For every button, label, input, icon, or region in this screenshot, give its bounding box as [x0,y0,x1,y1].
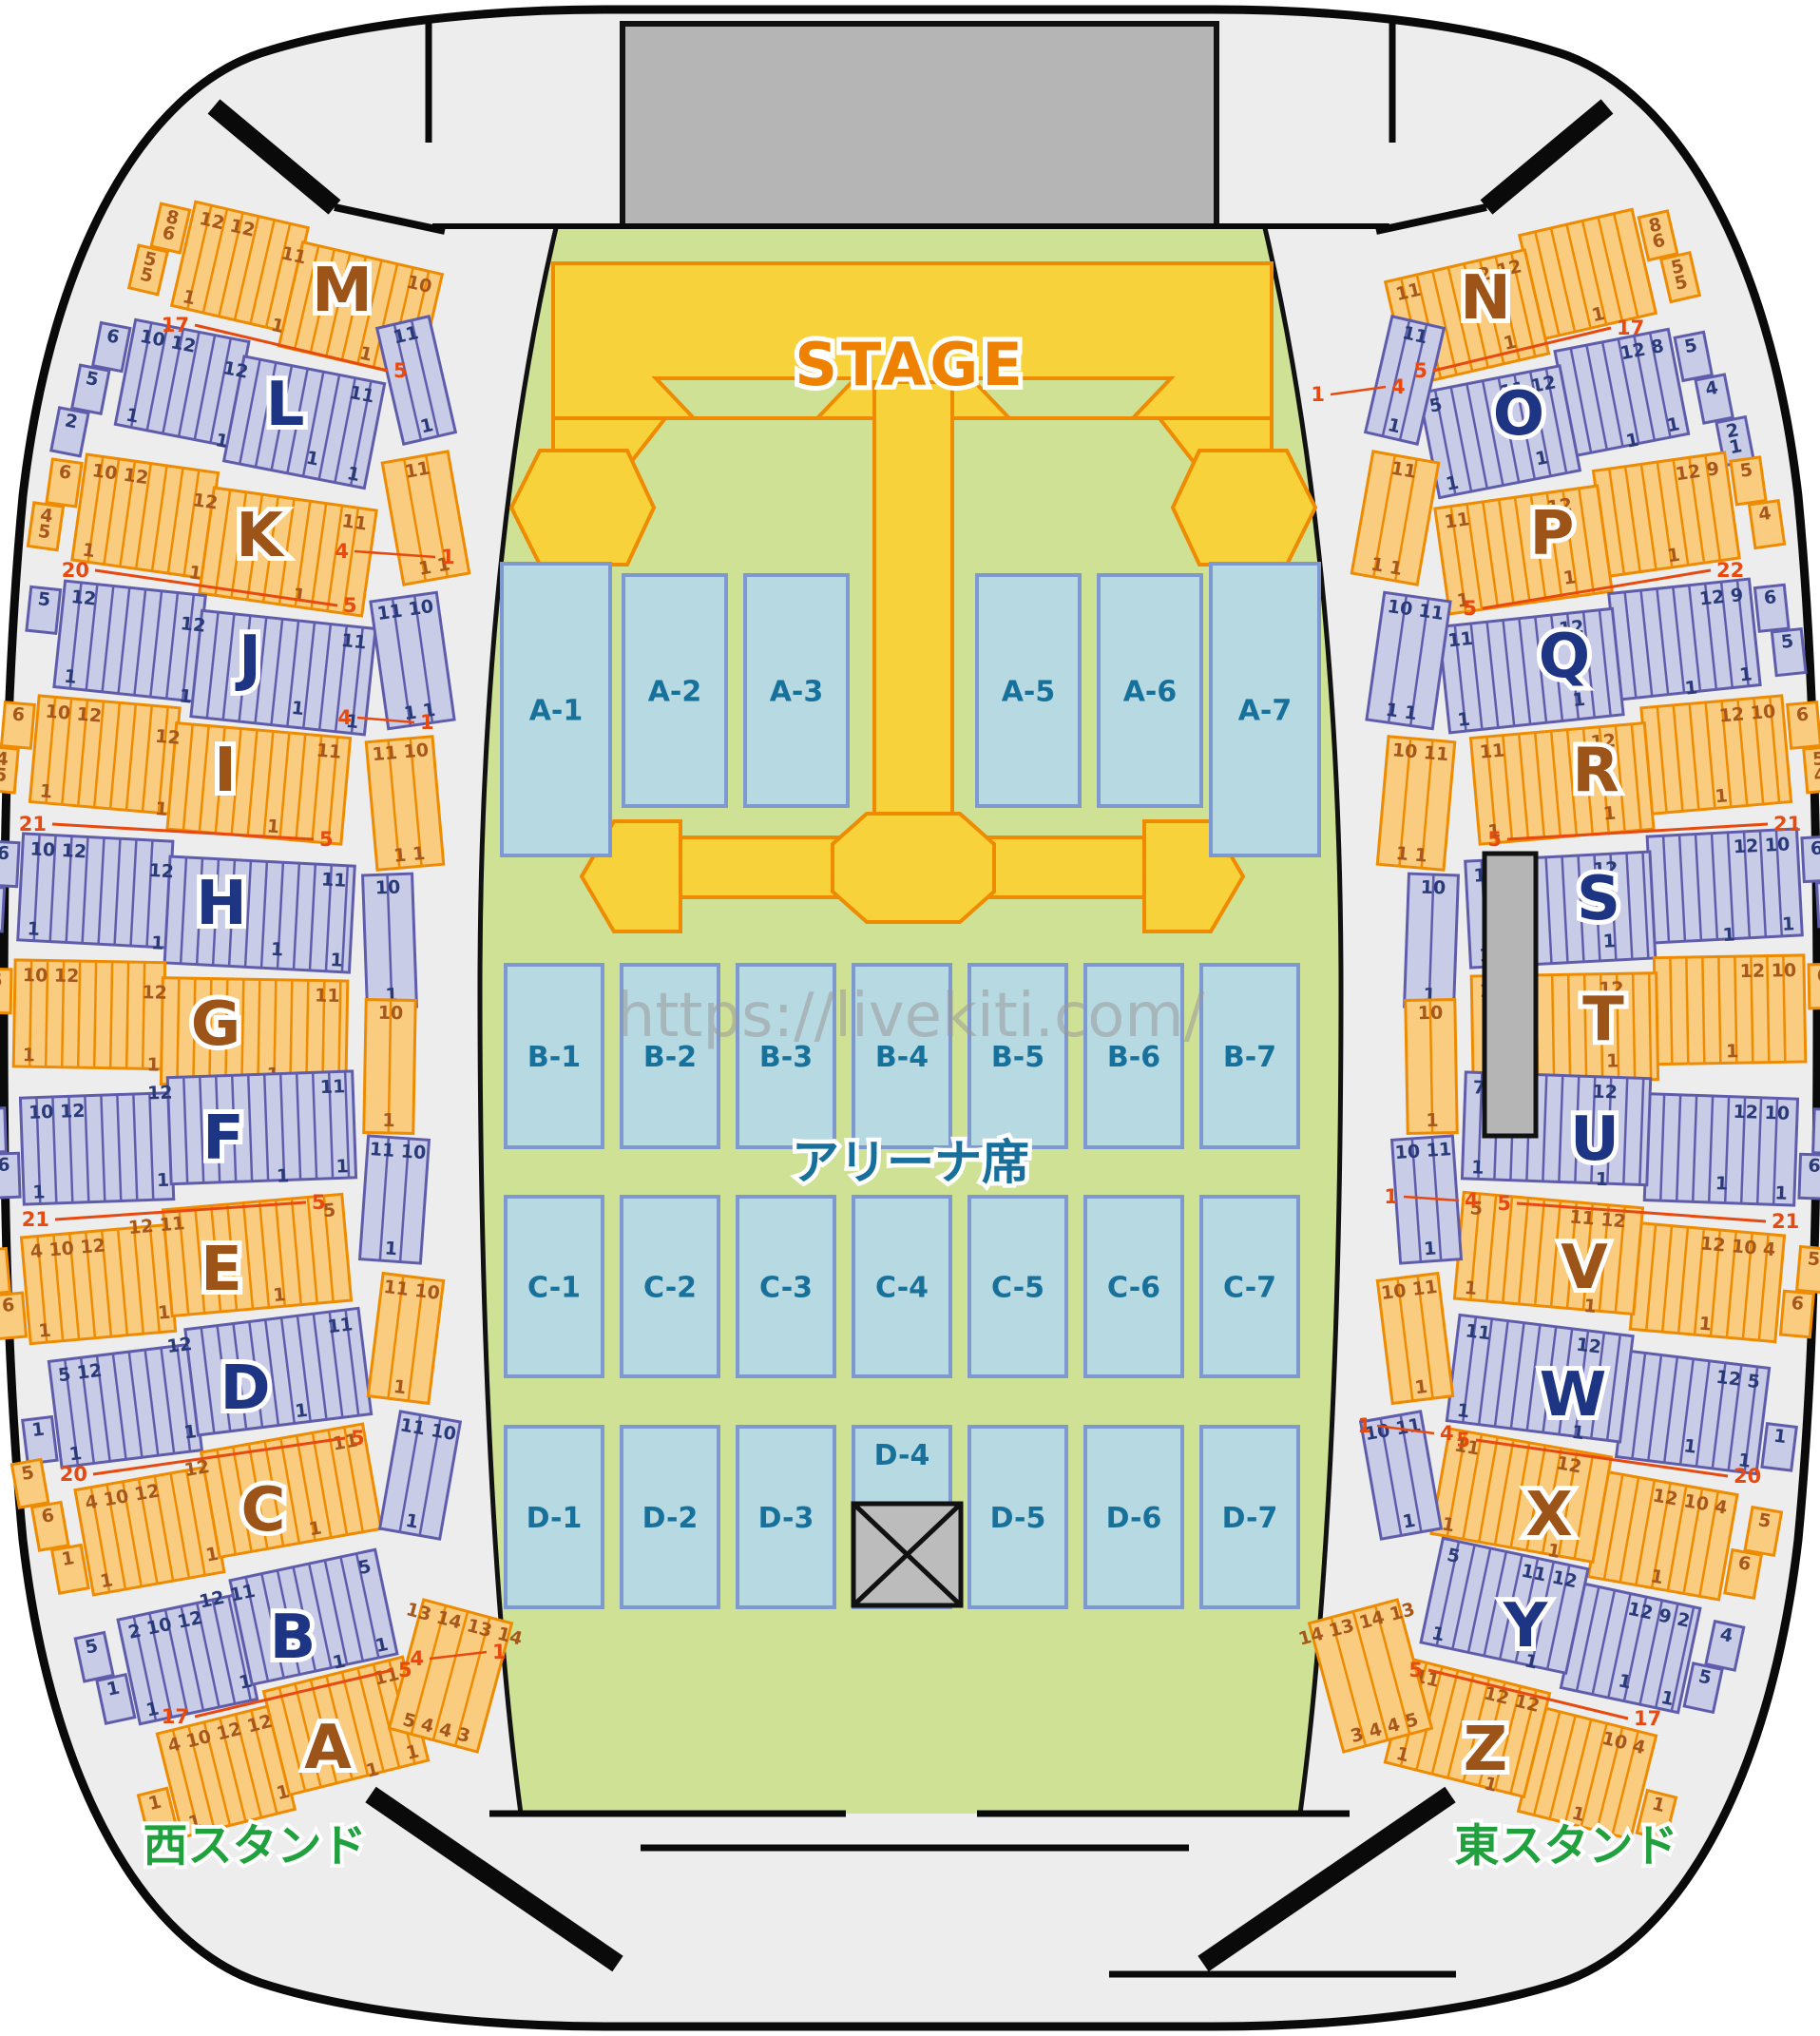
svg-text:6: 6 [0,1155,10,1176]
arena-block-label: D-3 [758,1502,814,1535]
svg-text:10: 10 [374,877,400,899]
svg-text:4: 4 [337,706,352,729]
svg-text:12 10: 12 10 [1739,960,1796,982]
east-gray-structure [1485,854,1536,1136]
arena-block-label: D-1 [527,1502,583,1535]
svg-text:1: 1 [1715,1173,1728,1194]
svg-text:6: 6 [1791,1293,1805,1315]
inner-block: 101 [363,874,417,1008]
inner-block: 11 101 [368,1274,443,1404]
inner-block: 11 101 1 [366,737,443,871]
svg-text:5: 5 [1413,359,1427,382]
svg-text:1: 1 [393,1376,408,1398]
svg-text:1: 1 [146,1054,160,1075]
svg-text:5: 5 [393,359,408,382]
svg-text:11: 11 [320,869,347,891]
svg-text:5: 5 [351,1427,365,1450]
svg-text:10 12: 10 12 [29,1101,86,1124]
section-letter-N: N [1460,263,1511,334]
section-letter-Z: Z [1464,1715,1507,1785]
east-stand-label: 東スタンド [1455,1820,1678,1873]
arena-block-C-1: C-1 [506,1197,603,1376]
arena-block-label: D-7 [1222,1502,1278,1535]
section-letter-H: H [196,869,247,939]
arena-block-label: C-4 [875,1272,929,1305]
svg-text:1: 1 [178,685,192,707]
svg-text:1: 1 [1426,1110,1439,1131]
seating-chart: STAGE A-1A-2A-3A-5A-6A-7B-1B-2B-3B-4B-5B… [0,0,1820,2036]
inner-block: 10 111 1 [1377,737,1454,871]
arena-block-label: C-3 [759,1272,813,1305]
svg-text:5: 5 [1807,1248,1820,1270]
arena-block-C-5: C-5 [969,1197,1066,1376]
svg-text:1: 1 [276,1165,289,1186]
svg-text:1: 1 [492,1641,507,1663]
svg-text:1: 1 [1781,913,1794,935]
svg-text:6: 6 [1763,586,1777,608]
arena-block-label: A-1 [529,695,584,728]
stage-label: STAGE [795,330,1025,399]
inner-block: 101 [1405,874,1459,1008]
svg-text:21: 21 [19,813,47,836]
svg-text:1: 1 [1384,1185,1398,1208]
section-letter-E: E [201,1235,242,1305]
svg-text:21: 21 [1772,1210,1799,1233]
svg-text:12: 12 [1592,1082,1618,1104]
svg-text:12: 12 [70,586,98,610]
svg-text:1: 1 [68,1443,84,1465]
svg-text:1: 1 [1464,1277,1478,1299]
section-letter-L: L [266,370,305,440]
svg-text:4: 4 [1391,375,1406,398]
svg-text:17: 17 [1617,317,1644,339]
arena-block-label: D-4 [874,1439,930,1472]
arena-block-A-5: A-5 [977,575,1080,806]
svg-text:1: 1 [1471,1157,1485,1178]
inner-block: 10 111 [1377,1274,1452,1404]
arena-block-D-7: D-7 [1201,1427,1298,1607]
svg-text:1: 1 [270,939,283,961]
svg-text:1: 1 [154,798,168,820]
svg-text:12: 12 [180,613,207,637]
svg-text:4: 4 [335,540,349,563]
svg-text:21: 21 [22,1208,49,1231]
svg-text:10 12: 10 12 [29,838,87,862]
svg-text:1: 1 [1726,1041,1739,1062]
svg-text:12: 12 [1575,1335,1602,1358]
svg-text:12: 12 [165,1334,193,1357]
arena-block-label: D-2 [642,1502,699,1535]
section-letter-P: P [1530,499,1575,569]
arena-floor-label: アリーナ席 [792,1135,1029,1190]
arena-block-C-7: C-7 [1201,1197,1298,1376]
arena-block-label: C-1 [527,1272,581,1305]
runway-spine [874,382,952,836]
arena-block-B-1: B-1 [506,965,603,1147]
svg-text:1: 1 [1457,709,1471,731]
svg-text:10: 10 [1420,877,1446,899]
seating-chart-canvas: STAGE A-1A-2A-3A-5A-6A-7B-1B-2B-3B-4B-5B… [0,0,1820,2036]
arena-block-C-3: C-3 [738,1197,834,1376]
svg-text:5: 5 [1780,631,1794,653]
svg-text:12: 12 [142,982,167,1003]
arena-block-label: C-5 [991,1272,1044,1305]
section-letter-S: S [1577,864,1620,934]
svg-text:1: 1 [1684,677,1698,699]
section-letter-Y: Y [1503,1591,1548,1661]
section-letter-A: A [304,1713,352,1783]
inner-block: 101 [364,1000,415,1134]
svg-text:12 10: 12 10 [1733,834,1791,857]
svg-text:4: 4 [410,1647,424,1670]
svg-text:1: 1 [384,1238,398,1259]
svg-text:1: 1 [1722,924,1735,946]
arena-block-label: A-7 [1238,695,1293,728]
svg-text:1: 1 [23,1045,36,1066]
svg-text:11 10: 11 10 [369,1139,427,1163]
svg-text:6: 6 [0,843,10,865]
svg-text:11: 11 [315,985,340,1006]
svg-text:11: 11 [340,630,368,654]
svg-text:1: 1 [1311,383,1325,406]
svg-text:1: 1 [266,816,280,837]
section-letter-W: W [1540,1360,1607,1431]
svg-text:11: 11 [1446,628,1474,652]
svg-text:17: 17 [1634,1707,1661,1730]
section-letter-B: B [270,1603,316,1673]
arena-block-A-3: A-3 [745,575,848,806]
svg-text:1: 1 [32,1181,46,1202]
svg-text:1: 1 [39,780,53,802]
runway-center-platform [833,814,994,922]
svg-text:11: 11 [1479,740,1505,763]
svg-text:1: 1 [1456,1400,1471,1422]
svg-text:11: 11 [1465,1320,1492,1344]
svg-text:20: 20 [62,559,89,582]
svg-text:1: 1 [1738,663,1753,685]
section-letter-O: O [1493,379,1544,450]
svg-text:5: 5 [1408,1659,1423,1681]
section-letter-G: G [191,989,241,1060]
svg-text:17: 17 [162,314,189,336]
svg-text:11: 11 [319,1076,345,1098]
svg-text:5: 5 [1487,828,1502,851]
svg-text:22: 22 [1716,559,1744,582]
arena-block-label: C-2 [643,1272,697,1305]
arena-block-C-6: C-6 [1085,1197,1182,1376]
svg-text:20: 20 [60,1463,87,1486]
svg-text:10: 10 [378,1003,404,1024]
svg-text:17: 17 [162,1705,189,1728]
arena-block-label: C-6 [1107,1272,1160,1305]
svg-text:1: 1 [157,1302,171,1324]
section-letter-X: X [1525,1480,1572,1550]
svg-text:6: 6 [0,970,3,990]
svg-text:1 1: 1 1 [1395,843,1428,867]
svg-text:1: 1 [30,1419,46,1441]
svg-text:12: 12 [1555,1452,1583,1477]
arena-block-D-5: D-5 [969,1427,1066,1607]
arena-block-A-6: A-6 [1099,575,1201,806]
svg-text:1: 1 [157,1170,170,1191]
side-stage-left [511,451,654,565]
svg-text:20: 20 [1734,1465,1761,1488]
section-letter-K: K [236,501,285,571]
arena-block-label: B-7 [1223,1041,1276,1074]
section-letter-V: V [1561,1233,1608,1303]
svg-text:1: 1 [1715,785,1729,807]
svg-text:12: 12 [154,726,181,749]
arena-block-label: B-1 [527,1041,581,1074]
svg-text:1: 1 [382,1110,395,1131]
svg-text:1: 1 [38,1320,52,1342]
arena-block-A-1: A-1 [502,564,610,855]
arena-block-D-4: D-4 [853,1427,961,1607]
arena-block-label: C-7 [1223,1272,1276,1305]
arena-block-label: A-3 [770,676,824,709]
section-letter-D: D [220,1354,270,1424]
svg-text:1: 1 [1602,803,1617,825]
section-letter-I: I [214,736,237,806]
svg-text:1: 1 [1572,689,1586,711]
svg-text:11: 11 [403,458,431,483]
svg-text:1: 1 [1413,1376,1428,1398]
svg-text:11: 11 [316,740,342,763]
svg-text:1: 1 [1774,1182,1788,1203]
section-letter-M: M [312,256,373,326]
west-stand-label: 西スタンド [144,1820,367,1873]
svg-text:1: 1 [63,666,77,688]
svg-text:12: 12 [147,1083,173,1104]
svg-text:1: 1 [1357,1414,1371,1437]
svg-text:11: 11 [326,1314,354,1337]
svg-text:1: 1 [291,698,305,720]
arena-block-B-7: B-7 [1201,965,1298,1147]
inner-block: 101 [1406,1000,1457,1134]
arena-block-C-2: C-2 [622,1197,718,1376]
arena-block-D-1: D-1 [506,1427,603,1607]
svg-text:1: 1 [1682,1435,1697,1457]
svg-text:1: 1 [330,950,343,971]
svg-text:5: 5 [319,828,334,851]
svg-text:11: 11 [1443,509,1470,532]
svg-text:10 12: 10 12 [23,965,80,987]
svg-text:1: 1 [27,918,40,940]
svg-text:5: 5 [312,1191,326,1214]
inner-block: 11 101 [360,1136,430,1263]
svg-text:21: 21 [1773,813,1801,836]
svg-text:5: 5 [1497,1192,1511,1215]
svg-text:6: 6 [1808,1156,1820,1177]
svg-text:1: 1 [335,1156,349,1177]
svg-text:6: 6 [11,704,26,726]
svg-text:12: 12 [148,860,175,882]
svg-text:1 1: 1 1 [393,843,426,867]
section-letter-J: J [235,624,261,694]
svg-text:4: 4 [1440,1422,1454,1445]
svg-text:5: 5 [343,594,357,617]
arena-block-label: A-2 [648,676,702,709]
section-letter-C: C [241,1475,286,1546]
arena-block-label: A-5 [1002,676,1056,709]
section-letter-T: T [1582,985,1624,1055]
arena-block-D-6: D-6 [1085,1427,1182,1607]
svg-text:1: 1 [182,1421,198,1443]
section-letter-Q: Q [1539,622,1590,692]
svg-text:11: 11 [340,510,368,534]
arena-block-label: A-6 [1123,676,1178,709]
svg-text:6: 6 [1795,704,1810,726]
svg-text:1: 1 [1423,1238,1437,1259]
svg-text:11: 11 [1389,458,1418,483]
arena-block-label: D-6 [1106,1502,1162,1535]
svg-text:12 10: 12 10 [1733,1102,1790,1124]
arena-block-label: D-5 [990,1502,1046,1535]
arena-block-D-3: D-3 [738,1427,834,1607]
svg-text:10: 10 [1418,1003,1444,1024]
svg-text:5: 5 [37,588,51,610]
svg-text:1: 1 [151,932,164,954]
svg-text:4: 4 [1465,1189,1479,1212]
svg-text:6: 6 [1816,965,1820,986]
arena-block-D-2: D-2 [622,1427,718,1607]
section-letter-R: R [1572,736,1619,806]
svg-text:10 11: 10 11 [1394,1139,1452,1163]
arena-block-A-2: A-2 [623,575,726,806]
svg-text:1: 1 [294,1400,309,1422]
svg-text:1 1: 1 1 [1385,700,1419,724]
svg-text:1: 1 [272,1284,286,1306]
svg-text:6: 6 [1,1295,15,1316]
svg-text:1: 1 [441,546,455,568]
svg-text:12: 12 [191,490,219,513]
svg-text:5: 5 [1463,597,1477,620]
arena-block-C-4: C-4 [853,1197,950,1376]
side-stage-right [1173,451,1315,565]
svg-text:6: 6 [1810,838,1820,860]
section-letter-F: F [202,1104,244,1174]
svg-text:1: 1 [420,711,434,734]
svg-text:5: 5 [1456,1429,1470,1451]
svg-text:1: 1 [1698,1314,1713,1335]
section-letter-U: U [1570,1104,1619,1175]
watermark: https://livekiti.com/ [617,981,1205,1051]
arena-block-A-7: A-7 [1211,564,1319,855]
svg-text:1: 1 [1772,1426,1788,1448]
